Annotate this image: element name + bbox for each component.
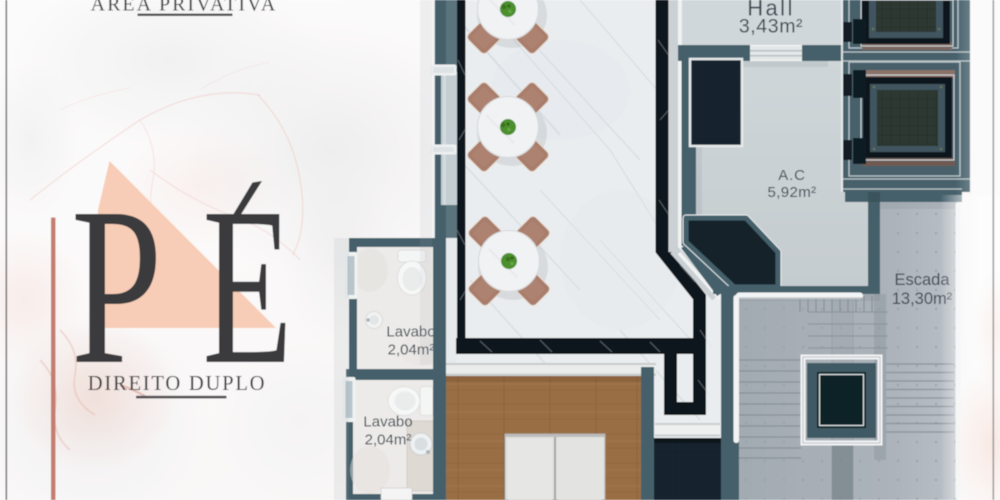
- svg-text:ÁREA PRIVATIVA: ÁREA PRIVATIVA: [91, 0, 278, 16]
- svg-text:2,04m²: 2,04m²: [365, 432, 412, 449]
- svg-text:DIREITO DUPLO: DIREITO DUPLO: [88, 373, 267, 395]
- svg-text:A.C: A.C: [778, 167, 805, 184]
- svg-text:Lavabo: Lavabo: [363, 414, 412, 431]
- svg-text:5,92m²: 5,92m²: [767, 184, 816, 201]
- svg-text:3,43m²: 3,43m²: [739, 16, 803, 38]
